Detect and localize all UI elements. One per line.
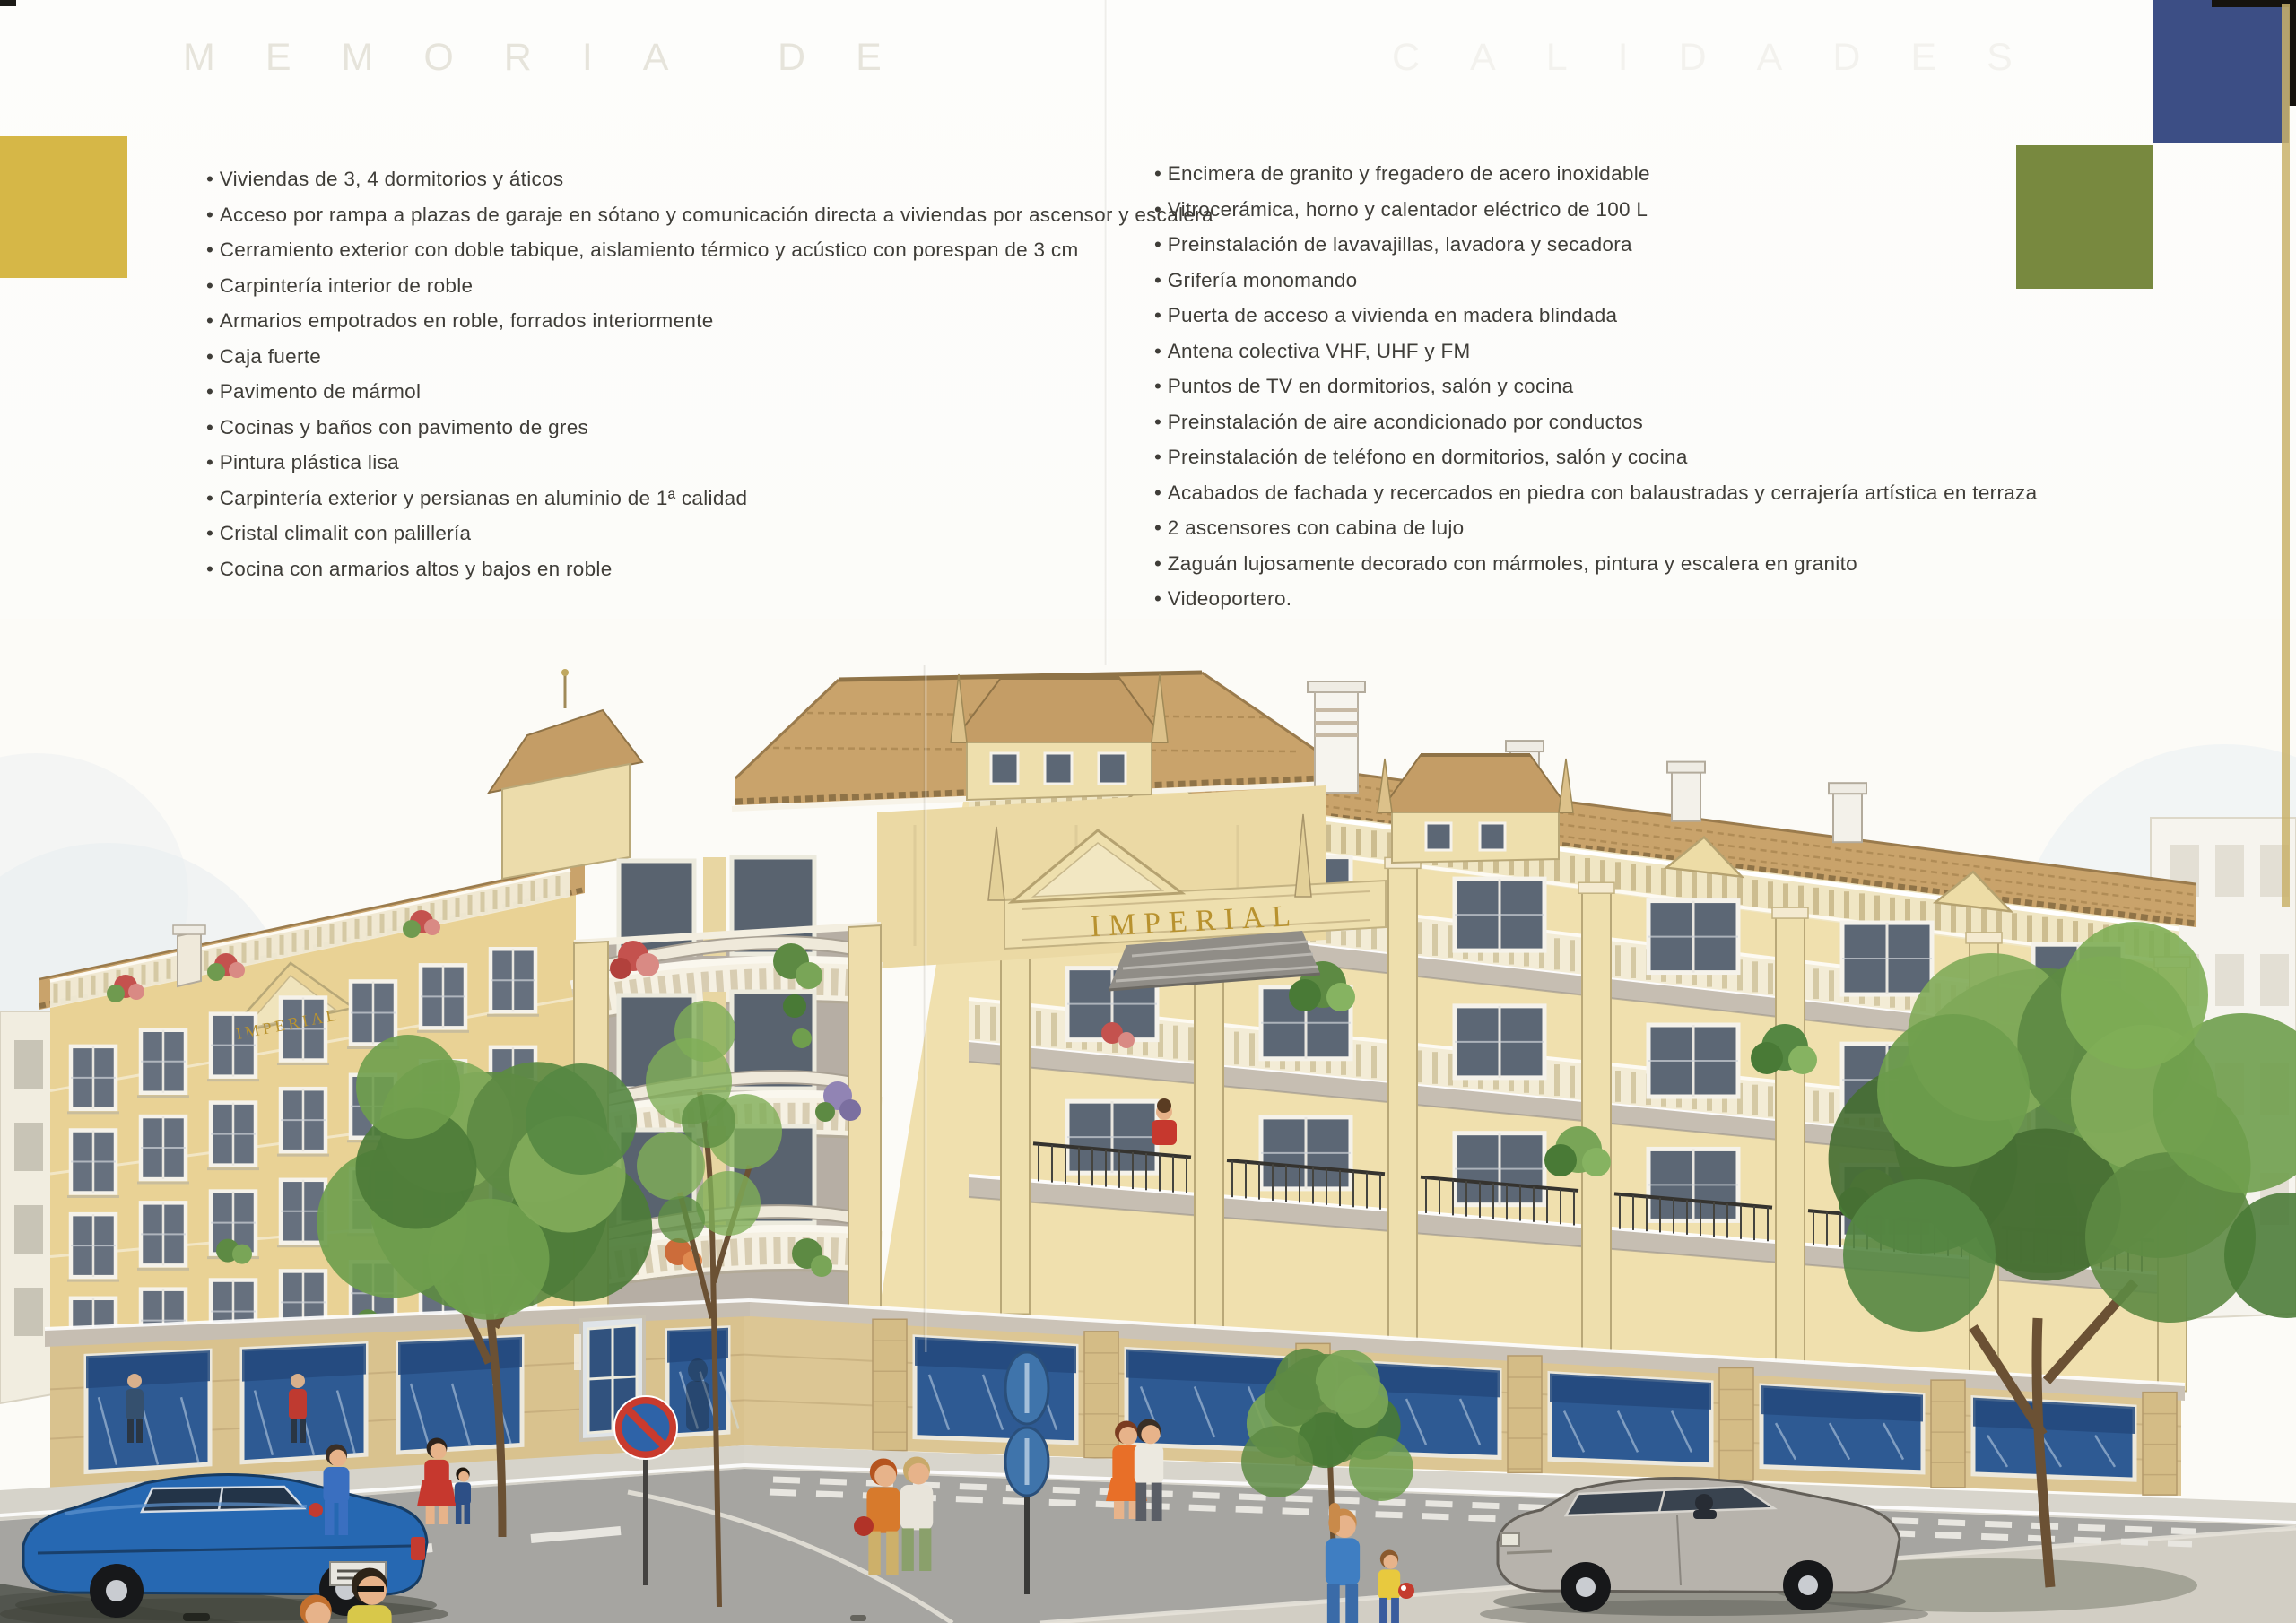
- feature-item: Cerramiento exterior con doble tabique, …: [206, 239, 1157, 260]
- feature-item: Preinstalación de lavavajillas, lavadora…: [1154, 234, 2141, 255]
- accent-square-yellow: [0, 136, 127, 278]
- ghost-title-right: CALIDADES: [1392, 36, 2063, 80]
- scan-edge-artifact: [0, 0, 16, 6]
- feature-item: Puerta de acceso a vivienda en madera bl…: [1154, 305, 2141, 325]
- feature-item: Videoportero.: [1154, 588, 2141, 609]
- brochure-page: MEMORIA DE CALIDADES Viviendas de 3, 4 d…: [0, 0, 2296, 1623]
- feature-item: Acceso por rampa a plazas de garaje en s…: [206, 204, 1157, 225]
- feature-item: Grifería monomando: [1154, 270, 2141, 291]
- feature-item: Acabados de fachada y recercados en pied…: [1154, 482, 2141, 503]
- feature-item: Cristal climalit con palillería: [206, 523, 1157, 543]
- scan-edge-artifact: [850, 1615, 866, 1621]
- scan-edge-artifact: [2289, 0, 2296, 106]
- feature-item: Zaguán lujosamente decorado con mármoles…: [1154, 553, 2141, 574]
- accent-square-blue: [2152, 0, 2289, 143]
- scan-edge-artifact: [183, 1613, 210, 1621]
- feature-item: Puntos de TV en dormitorios, salón y coc…: [1154, 376, 2141, 396]
- feature-item: Armarios empotrados en roble, forrados i…: [206, 310, 1157, 331]
- feature-item: Carpintería exterior y persianas en alum…: [206, 488, 1157, 508]
- feature-item: 2 ascensores con cabina de lujo: [1154, 517, 2141, 538]
- feature-item: Antena colectiva VHF, UHF y FM: [1154, 341, 2141, 361]
- feature-item: Pintura plástica lisa: [206, 452, 1157, 473]
- feature-item: Encimera de granito y fregadero de acero…: [1154, 163, 2141, 184]
- feature-item: Preinstalación de teléfono en dormitorio…: [1154, 447, 2141, 467]
- feature-item: Pavimento de mármol: [206, 381, 1157, 402]
- feature-item: Caja fuerte: [206, 346, 1157, 367]
- feature-item: Preinstalación de aire acondicionado por…: [1154, 412, 2141, 432]
- feature-item: Carpintería interior de roble: [206, 275, 1157, 296]
- feature-item: Vitrocerámica, horno y calentador eléctr…: [1154, 199, 2141, 220]
- scan-edge-artifact: [2282, 4, 2290, 907]
- features-list-left: Viviendas de 3, 4 dormitorios y áticos A…: [206, 169, 1157, 594]
- feature-item: Cocinas y baños con pavimento de gres: [206, 417, 1157, 438]
- building-illustration: IMPERIAL IMPERIAL: [0, 619, 2296, 1623]
- ghost-title-left: MEMORIA DE: [183, 36, 932, 80]
- feature-item: Viviendas de 3, 4 dormitorios y áticos: [206, 169, 1157, 189]
- features-list-right: Encimera de granito y fregadero de acero…: [1154, 163, 2141, 624]
- feature-item: Cocina con armarios altos y bajos en rob…: [206, 559, 1157, 579]
